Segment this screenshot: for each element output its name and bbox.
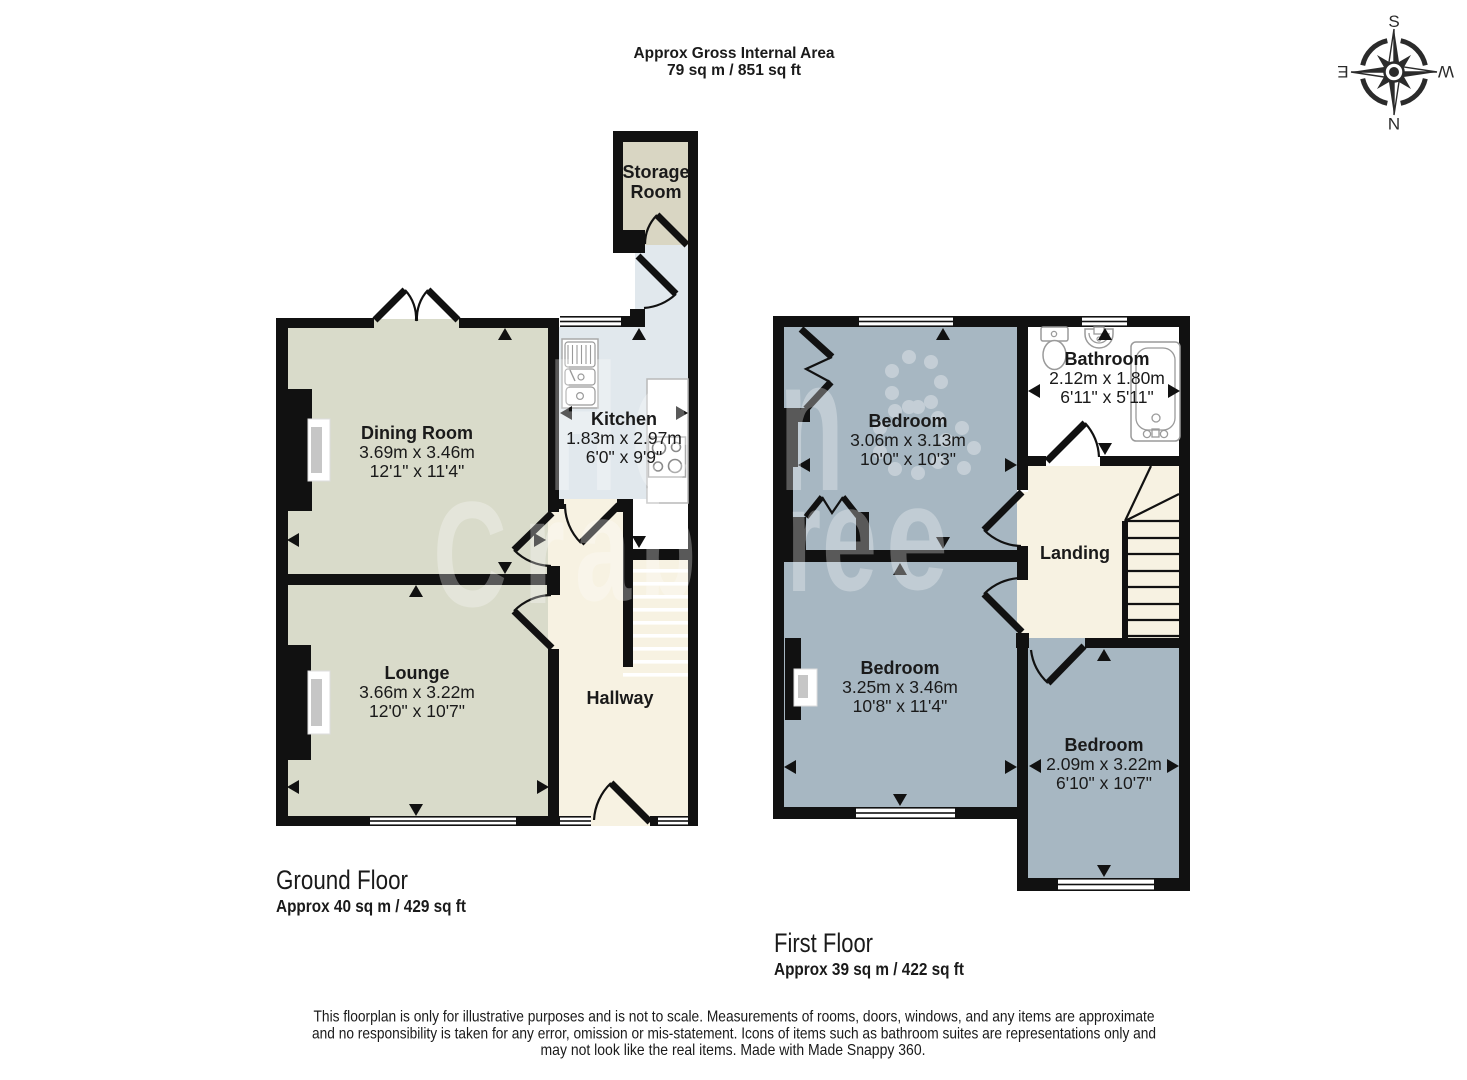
svg-text:Room: Room	[631, 182, 682, 202]
svg-text:First Floor: First Floor	[774, 928, 873, 958]
svg-text:a: a	[575, 464, 632, 632]
svg-text:1.83m x 2.97m: 1.83m x 2.97m	[566, 428, 682, 448]
svg-text:Approx 39 sq m / 422 sq ft: Approx 39 sq m / 422 sq ft	[774, 959, 964, 979]
svg-text:6'10" x 10'7": 6'10" x 10'7"	[1056, 773, 1152, 793]
svg-text:3.25m x 3.46m: 3.25m x 3.46m	[842, 677, 958, 697]
svg-text:Bedroom: Bedroom	[1064, 735, 1143, 755]
svg-text:may not look like the real ite: may not look like the real items. Made w…	[541, 1042, 926, 1059]
svg-text:C: C	[433, 470, 507, 638]
svg-text:Bedroom: Bedroom	[868, 411, 947, 431]
svg-text:Lounge: Lounge	[385, 663, 450, 683]
svg-text:2.09m x 3.22m: 2.09m x 3.22m	[1046, 754, 1162, 774]
svg-text:3.69m x 3.46m: 3.69m x 3.46m	[359, 442, 475, 462]
svg-text:Approx 40 sq m / 429 sq ft: Approx 40 sq m / 429 sq ft	[276, 896, 466, 916]
svg-text:Bedroom: Bedroom	[860, 658, 939, 678]
svg-text:10'0" x 10'3": 10'0" x 10'3"	[860, 449, 956, 469]
svg-text:10'8" x 11'4": 10'8" x 11'4"	[853, 696, 948, 716]
svg-text:12'0" x 10'7": 12'0" x 10'7"	[369, 701, 465, 721]
svg-text:Approx Gross Internal Area: Approx Gross Internal Area	[634, 45, 835, 62]
svg-text:6'11" x 5'11": 6'11" x 5'11"	[1060, 387, 1153, 407]
svg-text:This floorplan is only for ill: This floorplan is only for illustrative …	[314, 1009, 1155, 1026]
svg-text:3.66m x 3.22m: 3.66m x 3.22m	[359, 682, 475, 702]
svg-text:Hallway: Hallway	[586, 688, 653, 708]
svg-text:E: E	[1337, 62, 1348, 81]
svg-text:Landing: Landing	[1040, 543, 1110, 563]
svg-text:2.12m x 1.80m: 2.12m x 1.80m	[1049, 368, 1165, 388]
svg-text:r: r	[787, 455, 821, 623]
svg-text:and no responsibility is taken: and no responsibility is taken for any e…	[312, 1025, 1156, 1042]
svg-text:t: t	[712, 458, 754, 626]
svg-text:12'1" x 11'4": 12'1" x 11'4"	[370, 461, 465, 481]
svg-text:Bathroom: Bathroom	[1065, 349, 1150, 369]
svg-text:S: S	[1388, 12, 1399, 31]
svg-text:Kitchen: Kitchen	[591, 409, 657, 429]
svg-text:r: r	[523, 467, 565, 635]
svg-text:6'0" x 9'9": 6'0" x 9'9"	[586, 447, 663, 467]
svg-text:Ground Floor: Ground Floor	[276, 865, 408, 895]
svg-text:Storage: Storage	[622, 162, 689, 182]
svg-text:79 sq m / 851 sq ft: 79 sq m / 851 sq ft	[667, 62, 802, 79]
svg-text:W: W	[1438, 62, 1454, 81]
svg-text:b: b	[640, 461, 696, 629]
svg-text:N: N	[1388, 114, 1400, 133]
svg-text:e: e	[822, 454, 877, 622]
svg-text:Dining Room: Dining Room	[361, 423, 473, 443]
svg-text:3.06m x 3.13m: 3.06m x 3.13m	[850, 430, 966, 450]
